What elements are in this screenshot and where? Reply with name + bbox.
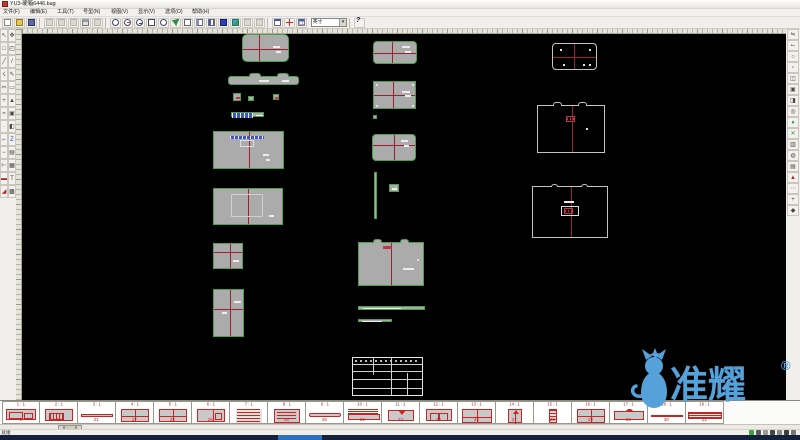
cell-count: 22 (398, 418, 403, 423)
piece-annotation-reddash (275, 97, 278, 99)
piece-annotation-dash (222, 312, 227, 314)
piece-annotation-dot (589, 49, 591, 51)
zoom-all-button[interactable] (158, 18, 169, 28)
piece-annotation-dash (259, 80, 269, 82)
right-tool-button-0[interactable]: ≒ (787, 29, 799, 40)
unit-combobox-value: 英寸 (312, 20, 322, 26)
pattern-bar-cell-8[interactable]: 8 : 125 (268, 401, 306, 424)
menu-item-4[interactable]: 视图(V) (111, 10, 128, 16)
new-file-button[interactable] (2, 18, 13, 28)
piece-annotation-dash (256, 115, 263, 116)
left-tool-button-5[interactable]: / (8, 55, 16, 68)
piece-annotation-dash (363, 308, 401, 309)
cell-count: 26 (208, 418, 213, 423)
cell-count: 25 (550, 418, 555, 423)
open-file-button[interactable] (14, 18, 25, 28)
piece-side-small[interactable] (213, 243, 243, 269)
copy-icon (58, 19, 65, 26)
print-button[interactable] (80, 18, 91, 28)
fill-view-icon (220, 19, 227, 26)
cell-count: 21 (94, 418, 99, 423)
piece-mid-lid[interactable] (373, 41, 417, 64)
piece-long-strip[interactable] (358, 306, 425, 310)
left-tool-button-12[interactable]: ≈ (0, 107, 8, 120)
unit-combobox[interactable]: 英寸 ▾ (311, 18, 347, 27)
open-file-icon (16, 19, 23, 26)
menu-item-6[interactable]: 选项(O) (165, 10, 183, 16)
print-icon (82, 19, 89, 26)
piece-thin-vertical[interactable] (374, 172, 377, 219)
left-tool-button-11[interactable]: ▲ (8, 94, 16, 107)
menu-item-0[interactable]: 文件(F) (3, 10, 20, 16)
piece-lid-top[interactable] (242, 34, 289, 62)
pattern-bar-cell-4[interactable]: 4 : 127 (116, 401, 154, 424)
left-tool-button-17[interactable]: Z (8, 133, 16, 146)
zoom-window-button[interactable] (146, 18, 157, 28)
piece-body-back[interactable] (213, 188, 283, 225)
save-file-icon (28, 19, 35, 26)
right-tool-button-1[interactable]: ⌙ (787, 40, 799, 51)
toolbar-separator (105, 18, 108, 28)
menu-item-1[interactable]: 编辑(E) (30, 10, 47, 16)
piece-annotation-obump (553, 102, 562, 106)
window-title: YU3-硬箱6446.bag (10, 1, 56, 7)
left-tool-button-13[interactable]: ▣ (8, 107, 16, 120)
piece-annotation-dash (263, 154, 269, 156)
left-tool-button-3[interactable]: ◰ (8, 42, 16, 55)
fill-view-button[interactable] (218, 18, 229, 28)
piece-annotation-whitebox (240, 140, 254, 147)
cell-count: 31 (702, 418, 707, 423)
frame-view-button[interactable] (182, 18, 193, 28)
cross-line (243, 49, 288, 50)
right-tool-button-8[interactable]: ♦ (787, 117, 799, 128)
menu-item-5[interactable]: 显示(V) (138, 10, 155, 16)
right-tool-button-12[interactable]: ▤ (787, 161, 799, 172)
left-tool-button-14[interactable]: · (0, 120, 8, 133)
cad-application-window: YU3-硬箱6446.bag 文件(F)编辑(E)工具(T)号型(N)视图(V)… (0, 0, 800, 440)
paste-button[interactable] (68, 18, 79, 28)
pattern-bar-cell-1[interactable]: 1 : 19 (2, 401, 40, 424)
piece-annotation-dash (234, 301, 241, 303)
left-tool-button-0[interactable]: ↖ (0, 29, 8, 42)
cell-label: 7 : 1 (244, 403, 252, 407)
cross-line (374, 53, 416, 54)
cut-button[interactable] (44, 18, 55, 28)
piece-annotation-bump (373, 239, 382, 243)
pattern-bar-cell-13[interactable]: 13 : 124 (458, 401, 496, 424)
piece-annotation-dash (402, 91, 410, 93)
piece-outline-box1[interactable] (537, 105, 605, 153)
piece-annotation-dot (376, 105, 378, 107)
cell-count: 23 (588, 418, 593, 423)
toolbar-separator (349, 18, 352, 28)
split-view-button[interactable] (194, 18, 205, 28)
piece-annotation-redbox (566, 116, 575, 122)
zoom-in-button[interactable] (122, 18, 133, 28)
left-tool-button-9[interactable]: ▭ (8, 81, 16, 94)
piece-thumbnail (651, 415, 683, 417)
cell-label: 10 : 1 (357, 403, 368, 407)
piece-annotation-dot (376, 84, 378, 86)
piece-annotation-dash (401, 140, 408, 142)
pattern-bar-cell-3[interactable]: 3 : 121 (78, 401, 116, 424)
piece-annotation-dash (405, 51, 411, 53)
piece-annotation-dot (560, 49, 562, 51)
piece-label-bar[interactable] (231, 112, 264, 117)
add-mark-button[interactable] (284, 18, 295, 28)
grain-line (230, 244, 231, 268)
piece-tiny-square[interactable] (373, 115, 377, 119)
undo-button[interactable] (92, 18, 103, 28)
cell-label: 3 : 1 (92, 403, 100, 407)
right-tool-button-15[interactable]: + (787, 194, 799, 205)
zoom-icon (112, 19, 119, 26)
title-block[interactable] (352, 357, 423, 396)
left-tool-button-24[interactable]: ◢ (0, 185, 8, 198)
menu-item-3[interactable]: 号型(N) (83, 10, 100, 16)
pan-button[interactable] (170, 18, 181, 28)
cell-label: 11 : 1 (395, 403, 405, 407)
grain-line (391, 243, 392, 285)
main-toolbar: 英寸 ▾ (0, 17, 800, 29)
left-tool-button-20[interactable]: ⊢ (0, 159, 8, 172)
right-tool-button-3[interactable]: ▫ (787, 62, 799, 73)
zoom-window-icon (148, 19, 155, 26)
cell-label: 1 : 1 (17, 403, 25, 407)
right-tool-button-7[interactable]: ◎ (787, 106, 799, 117)
piece-annotation-dot (583, 64, 585, 66)
disabled-tool-button[interactable] (242, 18, 253, 28)
size-table-button[interactable] (296, 18, 307, 28)
left-tool-button-15[interactable]: ◧ (8, 120, 16, 133)
right-tool-button-9[interactable]: ✕ (787, 128, 799, 139)
disabled-tool-icon (244, 19, 251, 26)
pattern-bar-cell-12[interactable]: 12 : 123 (420, 401, 458, 424)
piece-annotation-dash (403, 268, 414, 270)
cell-label: 19 : 1 (699, 403, 710, 407)
cell-count: 24 (474, 418, 479, 423)
right-tool-button-2[interactable]: ○ (787, 51, 799, 62)
piece-outline-box2[interactable] (532, 186, 608, 238)
piece-annotation-dot (586, 128, 588, 130)
right-tool-button-11[interactable]: ◍ (787, 150, 799, 161)
new-window-icon (274, 19, 281, 26)
left-tool-button-4[interactable]: ╱ (0, 55, 8, 68)
drawing-canvas[interactable] (22, 34, 786, 400)
cell-label: 18 : 1 (661, 403, 672, 407)
zoom-in-icon (124, 19, 131, 26)
help-pointer-icon (356, 19, 363, 26)
cell-count: 21 (360, 418, 365, 423)
title-bar: YU3-硬箱6446.bag (0, 0, 800, 9)
piece-thumbnail (81, 414, 113, 417)
piece-annotation-dot (589, 64, 591, 66)
piece-gusset[interactable] (358, 242, 424, 286)
pattern-bar-cell-5[interactable]: 5 : 122 (154, 401, 192, 424)
piece-annotation-dot (412, 84, 414, 86)
pan-icon (172, 19, 179, 26)
save-file-button[interactable] (26, 18, 37, 28)
piece-annotation-bluebar (232, 113, 253, 118)
piece-side-tall[interactable] (213, 289, 244, 337)
left-tool-button-2[interactable]: □ (0, 42, 8, 55)
new-file-icon (4, 19, 11, 26)
left-tool-button-19[interactable]: ▤ (8, 146, 16, 159)
zoom-all-icon (160, 19, 167, 26)
app-icon (2, 1, 8, 7)
pattern-piece-list: 1 : 192 : 1163 : 1214 : 1275 : 1226 : 12… (0, 400, 800, 424)
frame-view-icon (184, 19, 191, 26)
piece-annotation-dot (417, 259, 419, 261)
piece-annotation-dash (233, 260, 239, 262)
pattern-bar-cell-6[interactable]: 6 : 126 (192, 401, 230, 424)
piece-annotation-dash (362, 321, 382, 322)
left-tool-button-10[interactable]: + (0, 94, 8, 107)
right-tool-button-13[interactable]: ▲ (787, 172, 799, 183)
right-tool-button-16[interactable]: ◆ (787, 205, 799, 216)
piece-mid-lid2[interactable] (372, 134, 416, 161)
piece-annotation-bump (400, 239, 409, 243)
piece-annotation-dash (266, 159, 270, 161)
piece-annotation-obump (578, 102, 587, 106)
cell-label: 12 : 1 (433, 403, 444, 407)
cell-count: 27 (512, 418, 517, 423)
piece-small-2[interactable] (248, 96, 254, 101)
left-tool-button-22[interactable]: ▬ (0, 172, 8, 185)
left-tool-button-18[interactable]: − (0, 146, 8, 159)
chevron-down-icon[interactable]: ▾ (339, 19, 346, 26)
left-tool-button-25[interactable]: ▩ (8, 185, 16, 198)
cross-line (553, 57, 596, 58)
pattern-bar-cell-10[interactable]: 10 : 121 (344, 401, 382, 424)
zoom-out-icon (136, 19, 143, 26)
grain-line (394, 135, 395, 160)
piece-annotation-dash (269, 215, 274, 217)
taskbar-active-segment (278, 435, 322, 440)
size-table-icon (298, 19, 305, 26)
piece-annotation-bump (249, 73, 261, 77)
pattern-bar-cell-9[interactable]: 9 : 126 (306, 401, 344, 424)
add-mark-icon (286, 19, 293, 26)
piece-outline-lid[interactable] (552, 43, 597, 70)
piece-flap-strip[interactable] (228, 76, 299, 85)
pattern-bar-cell-11[interactable]: 11 : 122 (382, 401, 420, 424)
pattern-tools-toolbar: ≒⌙○▫◫▣◨◎♦✕▥◍▤▲⋯+◆ (787, 29, 800, 219)
pattern-bar-cell-18[interactable]: 18 : 130 (648, 401, 686, 424)
toolbar-separator (39, 18, 42, 28)
left-tool-button-7[interactable]: ✎ (8, 68, 16, 81)
piece-annotation-obump (551, 184, 558, 187)
disabled-tool2-button[interactable] (254, 18, 265, 28)
piece-annotation-dash (282, 80, 289, 82)
cell-label: 4 : 1 (130, 403, 138, 407)
layer-view-button[interactable] (230, 18, 241, 28)
piece-annotation-dash (402, 46, 410, 48)
left-tool-button-1[interactable]: ✥ (8, 29, 16, 42)
cell-label: 6 : 1 (206, 403, 214, 407)
cell-label: 17 : 1 (623, 403, 634, 407)
piece-short-strip[interactable] (358, 319, 392, 322)
piece-annotation-innerrect (231, 194, 263, 217)
cell-count: 16 (56, 418, 61, 423)
grain-line (230, 290, 231, 336)
piece-annotation-dash (564, 201, 574, 203)
piece-annotation-dash (276, 51, 281, 53)
undo-icon (94, 19, 101, 26)
taskbar-strip (0, 435, 800, 440)
cell-label: 5 : 1 (168, 403, 176, 407)
piece-annotation-bluebar (230, 136, 264, 139)
piece-body-front[interactable] (213, 131, 284, 169)
cell-label: 14 : 1 (509, 403, 520, 407)
grain-line (572, 106, 573, 152)
piece-mid-panel[interactable] (373, 81, 416, 109)
piece-small-1[interactable] (233, 93, 241, 101)
piece-annotation-dash (273, 46, 280, 48)
piece-small-3[interactable] (273, 94, 279, 100)
layer-view-icon (232, 19, 239, 26)
toolbar-separator (267, 18, 270, 28)
zoom-button[interactable] (110, 18, 121, 28)
cell-count: 22 (170, 418, 175, 423)
piece-thumbnail (309, 413, 341, 417)
context-help-button[interactable] (354, 18, 365, 28)
piece-annotation-dot (563, 64, 565, 66)
piece-annotation-reddash (236, 97, 240, 99)
zoom-out-button[interactable] (134, 18, 145, 28)
pattern-bar-cell-2[interactable]: 2 : 116 (40, 401, 78, 424)
left-tool-button-16[interactable]: ⌐ (0, 133, 8, 146)
left-tool-button-21[interactable]: ▦ (8, 159, 16, 172)
piece-tiny-tab[interactable] (389, 184, 399, 192)
cell-label: 8 : 1 (282, 403, 290, 407)
pattern-bar-cell-16[interactable]: 16 : 123 (572, 401, 610, 424)
right-tool-button-5[interactable]: ▣ (787, 84, 799, 95)
cell-count: 9 (20, 418, 23, 423)
pattern-bar-cell-19[interactable]: 19 : 131 (686, 401, 724, 424)
piece-annotation-dot (412, 105, 414, 107)
cell-count: 26 (322, 418, 327, 423)
left-tool-button-6[interactable]: ☇ (0, 68, 8, 81)
piece-annotation-dash (404, 145, 409, 147)
right-tool-button-10[interactable]: ▥ (787, 139, 799, 150)
piece-annotation-dash (405, 95, 411, 97)
left-tool-button-23[interactable]: T (8, 172, 16, 185)
piece-thumbnail (236, 409, 262, 423)
cell-count: 25 (284, 418, 289, 423)
cell-count: 23 (436, 418, 441, 423)
pattern-bar-cell-17[interactable]: 17 : 126 (610, 401, 648, 424)
cell-count: 27 (132, 418, 137, 423)
split-view-icon (196, 19, 203, 26)
piece-annotation-redbox (564, 208, 573, 214)
copy-button[interactable] (56, 18, 67, 28)
cell-label: 13 : 1 (471, 403, 482, 407)
left-tool-button-8[interactable]: ✂ (0, 81, 8, 94)
piece-annotation-obump (581, 184, 588, 187)
piece-annotation-dash (392, 188, 397, 190)
grain-line (259, 35, 260, 61)
cell-count: 26 (626, 418, 631, 423)
pattern-bar-cell-14[interactable]: 14 : 127 (496, 401, 534, 424)
menu-item-2[interactable]: 工具(T) (57, 10, 74, 16)
piece-annotation-reddash (383, 246, 392, 249)
columns-view-button[interactable] (206, 18, 217, 28)
cross-line (214, 252, 242, 253)
menu-bar: 文件(F)编辑(E)工具(T)号型(N)视图(V)显示(V)选项(O)帮助(H) (0, 9, 800, 17)
menu-item-7[interactable]: 帮助(H) (192, 10, 209, 16)
drawing-tools-toolbar: ↖✥□◰╱/☇✎✂▭+▲≈▣·◧⌐Z−▤⊢▦▬T◢▩ (0, 29, 17, 200)
new-window-button[interactable] (272, 18, 283, 28)
columns-view-icon (208, 19, 215, 26)
cell-label: 15 : 1 (547, 403, 558, 407)
cell-label: 16 : 1 (585, 403, 596, 407)
cell-count: 30 (664, 418, 669, 423)
piece-annotation-bump (277, 73, 289, 77)
pattern-bar-cell-15[interactable]: 15 : 125 (534, 401, 572, 424)
disabled-tool2-icon (256, 19, 263, 26)
paste-icon (70, 19, 77, 26)
cell-label: 2 : 1 (54, 403, 62, 407)
cell-label: 9 : 1 (320, 403, 328, 407)
cross-line (214, 309, 243, 310)
right-tool-button-4[interactable]: ◫ (787, 73, 799, 84)
right-tool-button-6[interactable]: ◨ (787, 95, 799, 106)
cut-icon (46, 19, 53, 26)
pattern-bar-cell-7[interactable]: 7 : 1 (230, 401, 268, 424)
right-tool-button-14[interactable]: ⋯ (787, 183, 799, 194)
